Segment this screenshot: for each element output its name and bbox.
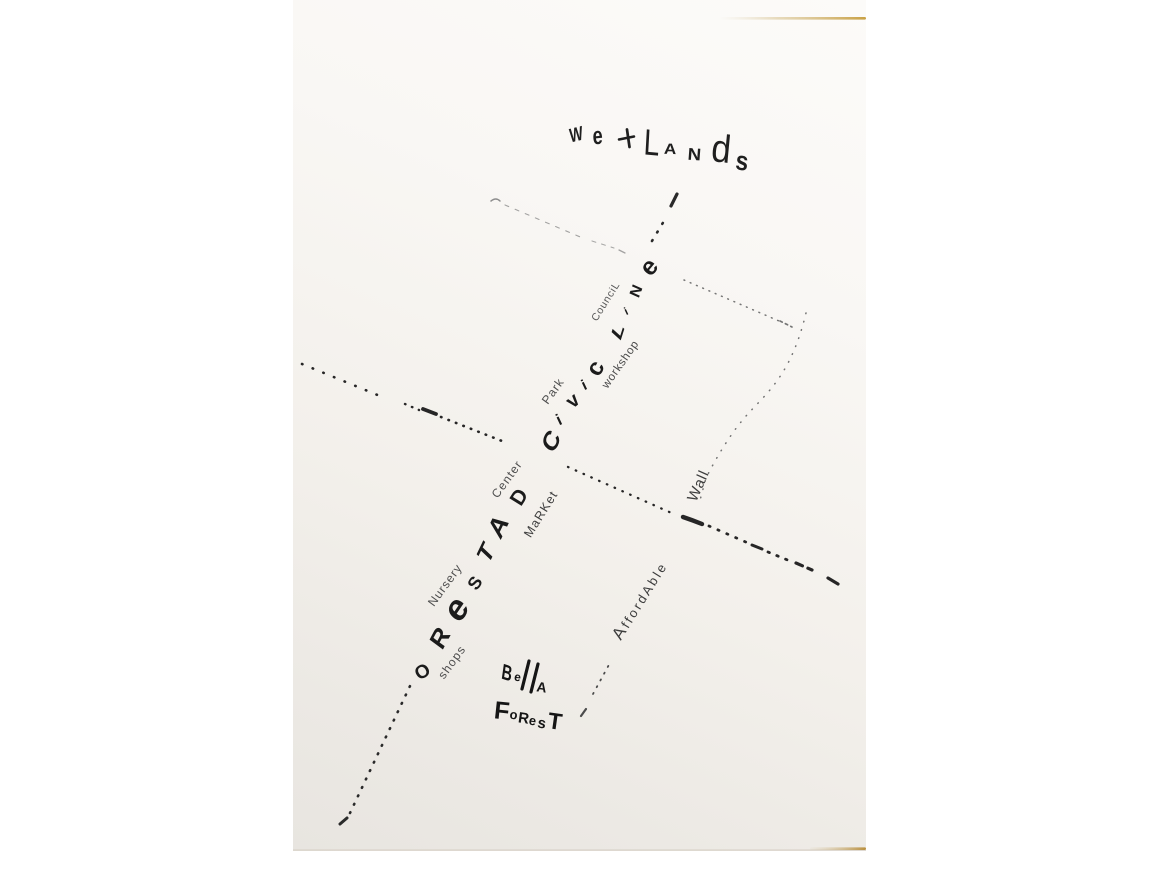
svg-text:N: N (687, 144, 702, 164)
svg-text:Park: Park (539, 375, 567, 406)
svg-text:C: C (537, 425, 566, 458)
svg-text:i: i (579, 377, 590, 394)
svg-text:Wall: Wall (684, 467, 713, 504)
svg-text:i: i (622, 306, 630, 318)
svg-text:L: L (609, 318, 628, 345)
svg-text:d: d (710, 125, 733, 171)
svg-text:T: T (546, 707, 564, 735)
svg-text:R: R (425, 622, 456, 655)
svg-text:B: B (500, 659, 514, 687)
svg-text:O: O (411, 660, 434, 686)
svg-text:e: e (513, 670, 522, 685)
svg-text:e: e (528, 713, 537, 729)
svg-text:v: v (562, 388, 585, 413)
svg-text:e: e (634, 253, 664, 282)
svg-text:L: L (643, 121, 661, 164)
svg-text:s: s (734, 145, 750, 177)
svg-text:S: S (463, 572, 486, 593)
svg-text:CounciL: CounciL (589, 280, 623, 324)
svg-text:e: e (592, 121, 603, 150)
svg-text:A: A (483, 508, 514, 544)
svg-text:i: i (554, 412, 565, 429)
svg-text:A: A (664, 141, 677, 158)
svg-text:A: A (536, 678, 548, 695)
svg-text:D: D (506, 485, 534, 510)
svg-text:W: W (568, 121, 585, 147)
svg-text:T: T (473, 537, 499, 570)
svg-text:workshop: workshop (599, 338, 641, 391)
svg-text:N: N (627, 282, 646, 300)
svg-text:s: s (536, 714, 547, 732)
svg-text:AffordAble: AffordAble (608, 557, 671, 643)
